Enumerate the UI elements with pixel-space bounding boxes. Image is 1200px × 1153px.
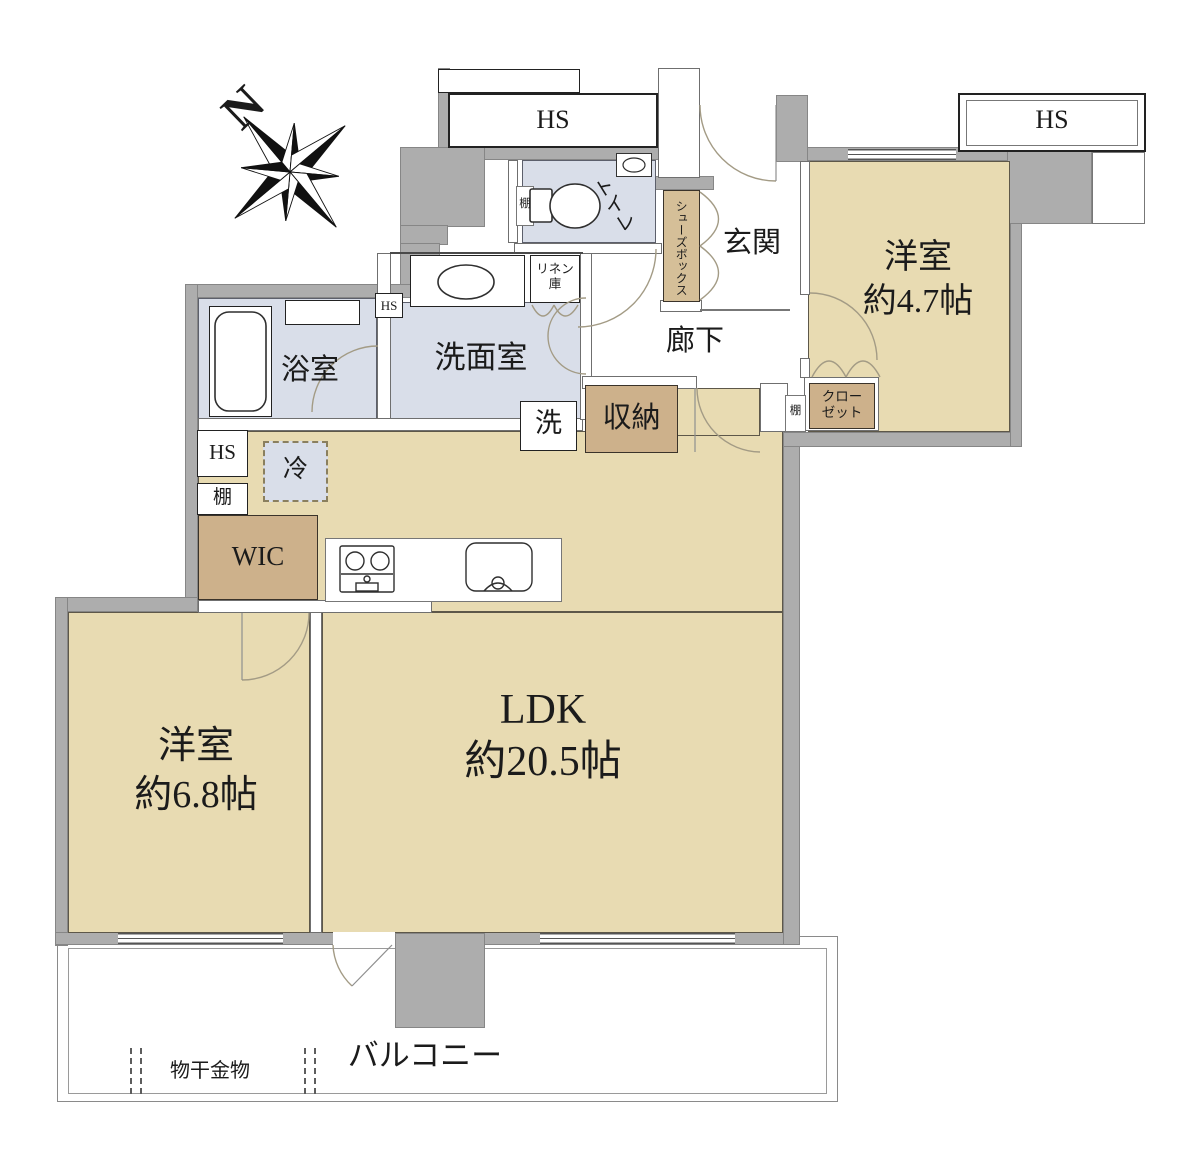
- ldk-name: LDK: [393, 684, 693, 736]
- drying-hardware-label: 物干金物: [135, 1060, 285, 1084]
- washing-machine-label: 洗: [520, 408, 577, 440]
- bedroom-68-area: 約6.8帖: [46, 771, 346, 820]
- hs-label: HS: [1002, 105, 1102, 136]
- shoe-box-label: シューズボックス: [674, 196, 688, 300]
- door-arc-closet: [812, 361, 880, 377]
- door-arc-entrance: [700, 105, 776, 181]
- shelf-label: 棚: [785, 405, 806, 419]
- shelf-label: 棚: [516, 198, 534, 212]
- hs-label: HS: [375, 298, 403, 313]
- door-arc-balcony: [333, 945, 352, 986]
- kitchen-sink: [466, 543, 532, 591]
- linen-label-line1: リネン: [531, 262, 579, 277]
- bedroom-68-name: 洋室: [46, 722, 346, 771]
- door-leaf: [352, 945, 392, 986]
- storage-label: 収納: [585, 401, 678, 435]
- wash-basin: [438, 265, 494, 299]
- bedroom-47-label: 洋室 約4.7帖: [792, 236, 1044, 324]
- door-arc-ldk: [697, 388, 760, 452]
- stove: [340, 546, 394, 592]
- ldk-area: 約20.5帖: [393, 736, 693, 788]
- hs-label: HS: [197, 440, 248, 465]
- door-arc-toilet: [578, 249, 656, 327]
- washroom-label: 洗面室: [401, 340, 561, 377]
- bathroom-label: 浴室: [250, 353, 370, 387]
- refrigerator-label: 冷: [263, 455, 328, 485]
- hs-label: HS: [503, 105, 603, 136]
- ventilation-fan: [623, 158, 645, 172]
- closet-label: クロー ゼット: [809, 389, 875, 421]
- wic-label: WIC: [198, 541, 318, 573]
- closet-label-line1: クロー: [809, 389, 875, 405]
- hallway-label: 廊下: [645, 324, 745, 358]
- bedroom-68-label: 洋室 約6.8帖: [46, 722, 346, 821]
- closet-label-line2: ゼット: [809, 405, 875, 421]
- entrance-label: 玄関: [702, 226, 802, 260]
- door-arc-bedroom68: [242, 613, 309, 680]
- floor-plan: N HS HS HS HS 棚 棚 棚 トイレ リネン 庫 シューズボックス 玄…: [0, 0, 1200, 1153]
- bedroom-47-name: 洋室: [792, 236, 1044, 280]
- linen-label-line2: 庫: [531, 277, 579, 292]
- ldk-label: LDK 約20.5帖: [393, 684, 693, 788]
- balcony-label: バルコニー: [275, 1038, 575, 1075]
- linen-label: リネン 庫: [531, 262, 579, 292]
- bedroom-47-area: 約4.7帖: [792, 280, 1044, 324]
- shelf-label: 棚: [197, 487, 248, 509]
